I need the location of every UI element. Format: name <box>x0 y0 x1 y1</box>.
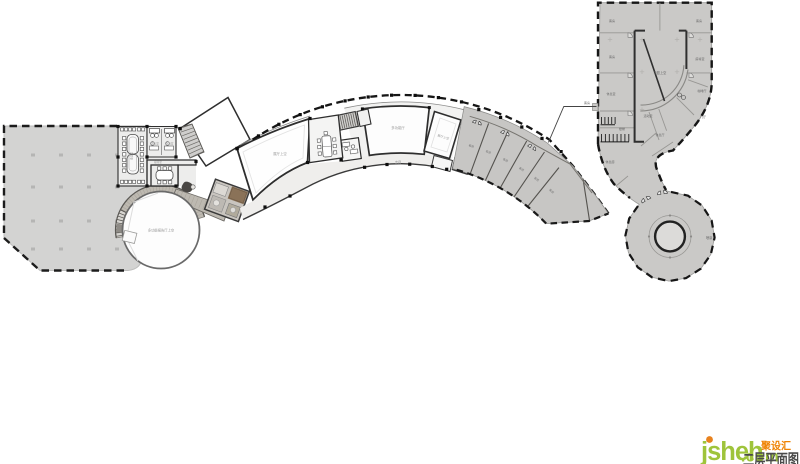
svg-text:办公室: 办公室 <box>166 142 174 146</box>
svg-text:办公室: 办公室 <box>151 142 159 146</box>
svg-text:展厅上空: 展厅上空 <box>273 151 287 156</box>
svg-text:客房: 客房 <box>609 54 615 59</box>
svg-text:多功能厅: 多功能厅 <box>391 125 405 130</box>
svg-text:喷泉: 喷泉 <box>706 235 713 240</box>
svg-text:接待室: 接待室 <box>154 160 162 164</box>
svg-text:客房: 客房 <box>696 18 702 23</box>
svg-text:二层平面图: 二层平面图 <box>743 451 799 464</box>
svg-text:会议室: 会议室 <box>130 152 134 160</box>
svg-text:中庭上空: 中庭上空 <box>654 70 667 75</box>
svg-text:客房: 客房 <box>609 18 615 23</box>
svg-text:休息厅: 休息厅 <box>655 132 664 137</box>
svg-text:多功能报告厅上空: 多功能报告厅上空 <box>148 228 175 233</box>
svg-text:客房: 客房 <box>584 100 590 105</box>
svg-text:走廊: 走廊 <box>395 160 402 165</box>
svg-text:活动室: 活动室 <box>643 113 652 118</box>
svg-text:休息室: 休息室 <box>606 91 615 96</box>
svg-text:休息廊: 休息廊 <box>605 159 614 164</box>
svg-text:咖啡厅: 咖啡厅 <box>697 88 706 93</box>
svg-text:麻将室: 麻将室 <box>695 56 704 61</box>
svg-text:门厅: 门厅 <box>700 114 706 119</box>
svg-text:聚设汇: 聚设汇 <box>760 440 791 453</box>
svg-text:楼梯: 楼梯 <box>619 126 625 131</box>
